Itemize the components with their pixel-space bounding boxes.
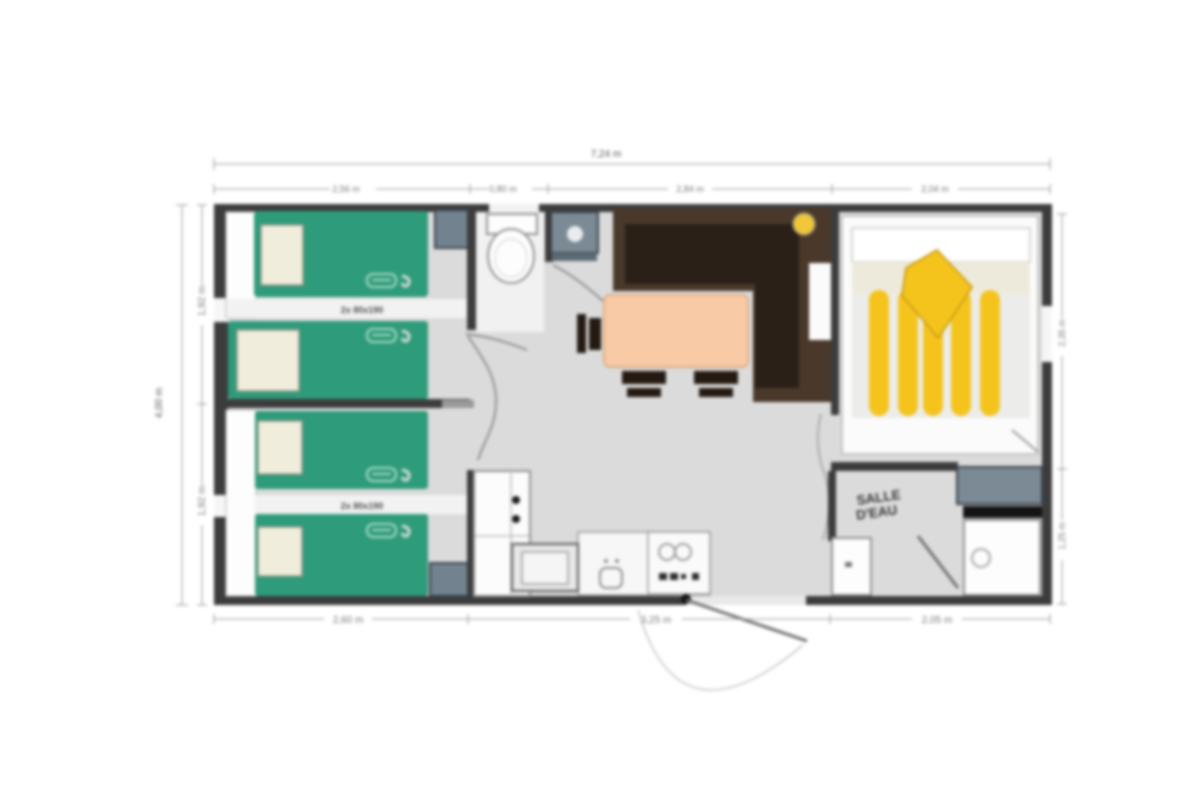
svg-text:1,92 m: 1,92 m — [197, 286, 208, 317]
svg-text:2,60 m: 2,60 m — [333, 615, 364, 626]
svg-text:2,04 m: 2,04 m — [921, 184, 949, 194]
svg-text:2,56 m: 2,56 m — [332, 184, 360, 194]
svg-text:2x 80x190: 2x 80x190 — [341, 305, 384, 315]
svg-text:2x 80x190: 2x 80x190 — [341, 501, 384, 511]
svg-text:1,92 m: 1,92 m — [197, 486, 208, 517]
svg-text:2,35 m: 2,35 m — [1057, 319, 1067, 347]
svg-text:7,24 m: 7,24 m — [591, 149, 622, 160]
svg-text:2,84 m: 2,84 m — [676, 184, 704, 194]
svg-text:3,25 m: 3,25 m — [641, 615, 672, 626]
svg-text:0,80 m: 0,80 m — [489, 184, 517, 194]
svg-text:1,25 m: 1,25 m — [1057, 522, 1067, 550]
svg-text:2,05 m: 2,05 m — [922, 615, 953, 626]
svg-text:4,00 m: 4,00 m — [154, 388, 165, 419]
